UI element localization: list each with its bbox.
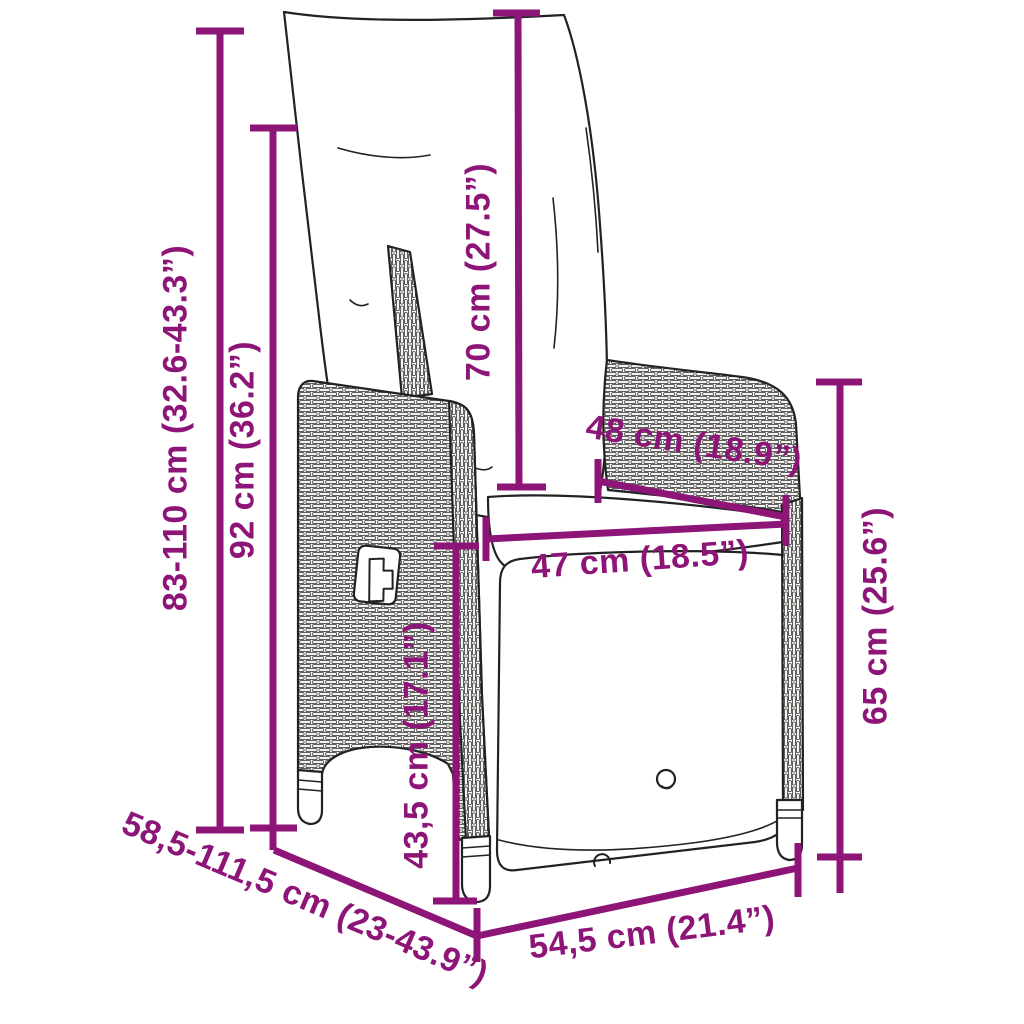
- dim-line-armrest-height: [816, 382, 862, 893]
- dimension-diagram: 83-110 cm (32.6-43.3”) 92 cm (36.2”) 70 …: [0, 0, 1024, 1024]
- recline-handle: [353, 545, 401, 605]
- rear-left-leg: [298, 770, 322, 824]
- front-panel: [497, 551, 792, 870]
- dim-label-back-cushion-length: 70 cm (27.5”): [460, 163, 499, 381]
- left-side-panel: [298, 381, 489, 840]
- dim-label-overall-height: 83-110 cm (32.6-43.3”): [157, 245, 196, 611]
- dim-label-seat-height: 43,5 cm (17.1”): [398, 621, 437, 869]
- dim-label-armrest-height: 65 cm (25.6”): [857, 507, 896, 725]
- dim-label-backrest-height: 92 cm (36.2”): [224, 341, 263, 559]
